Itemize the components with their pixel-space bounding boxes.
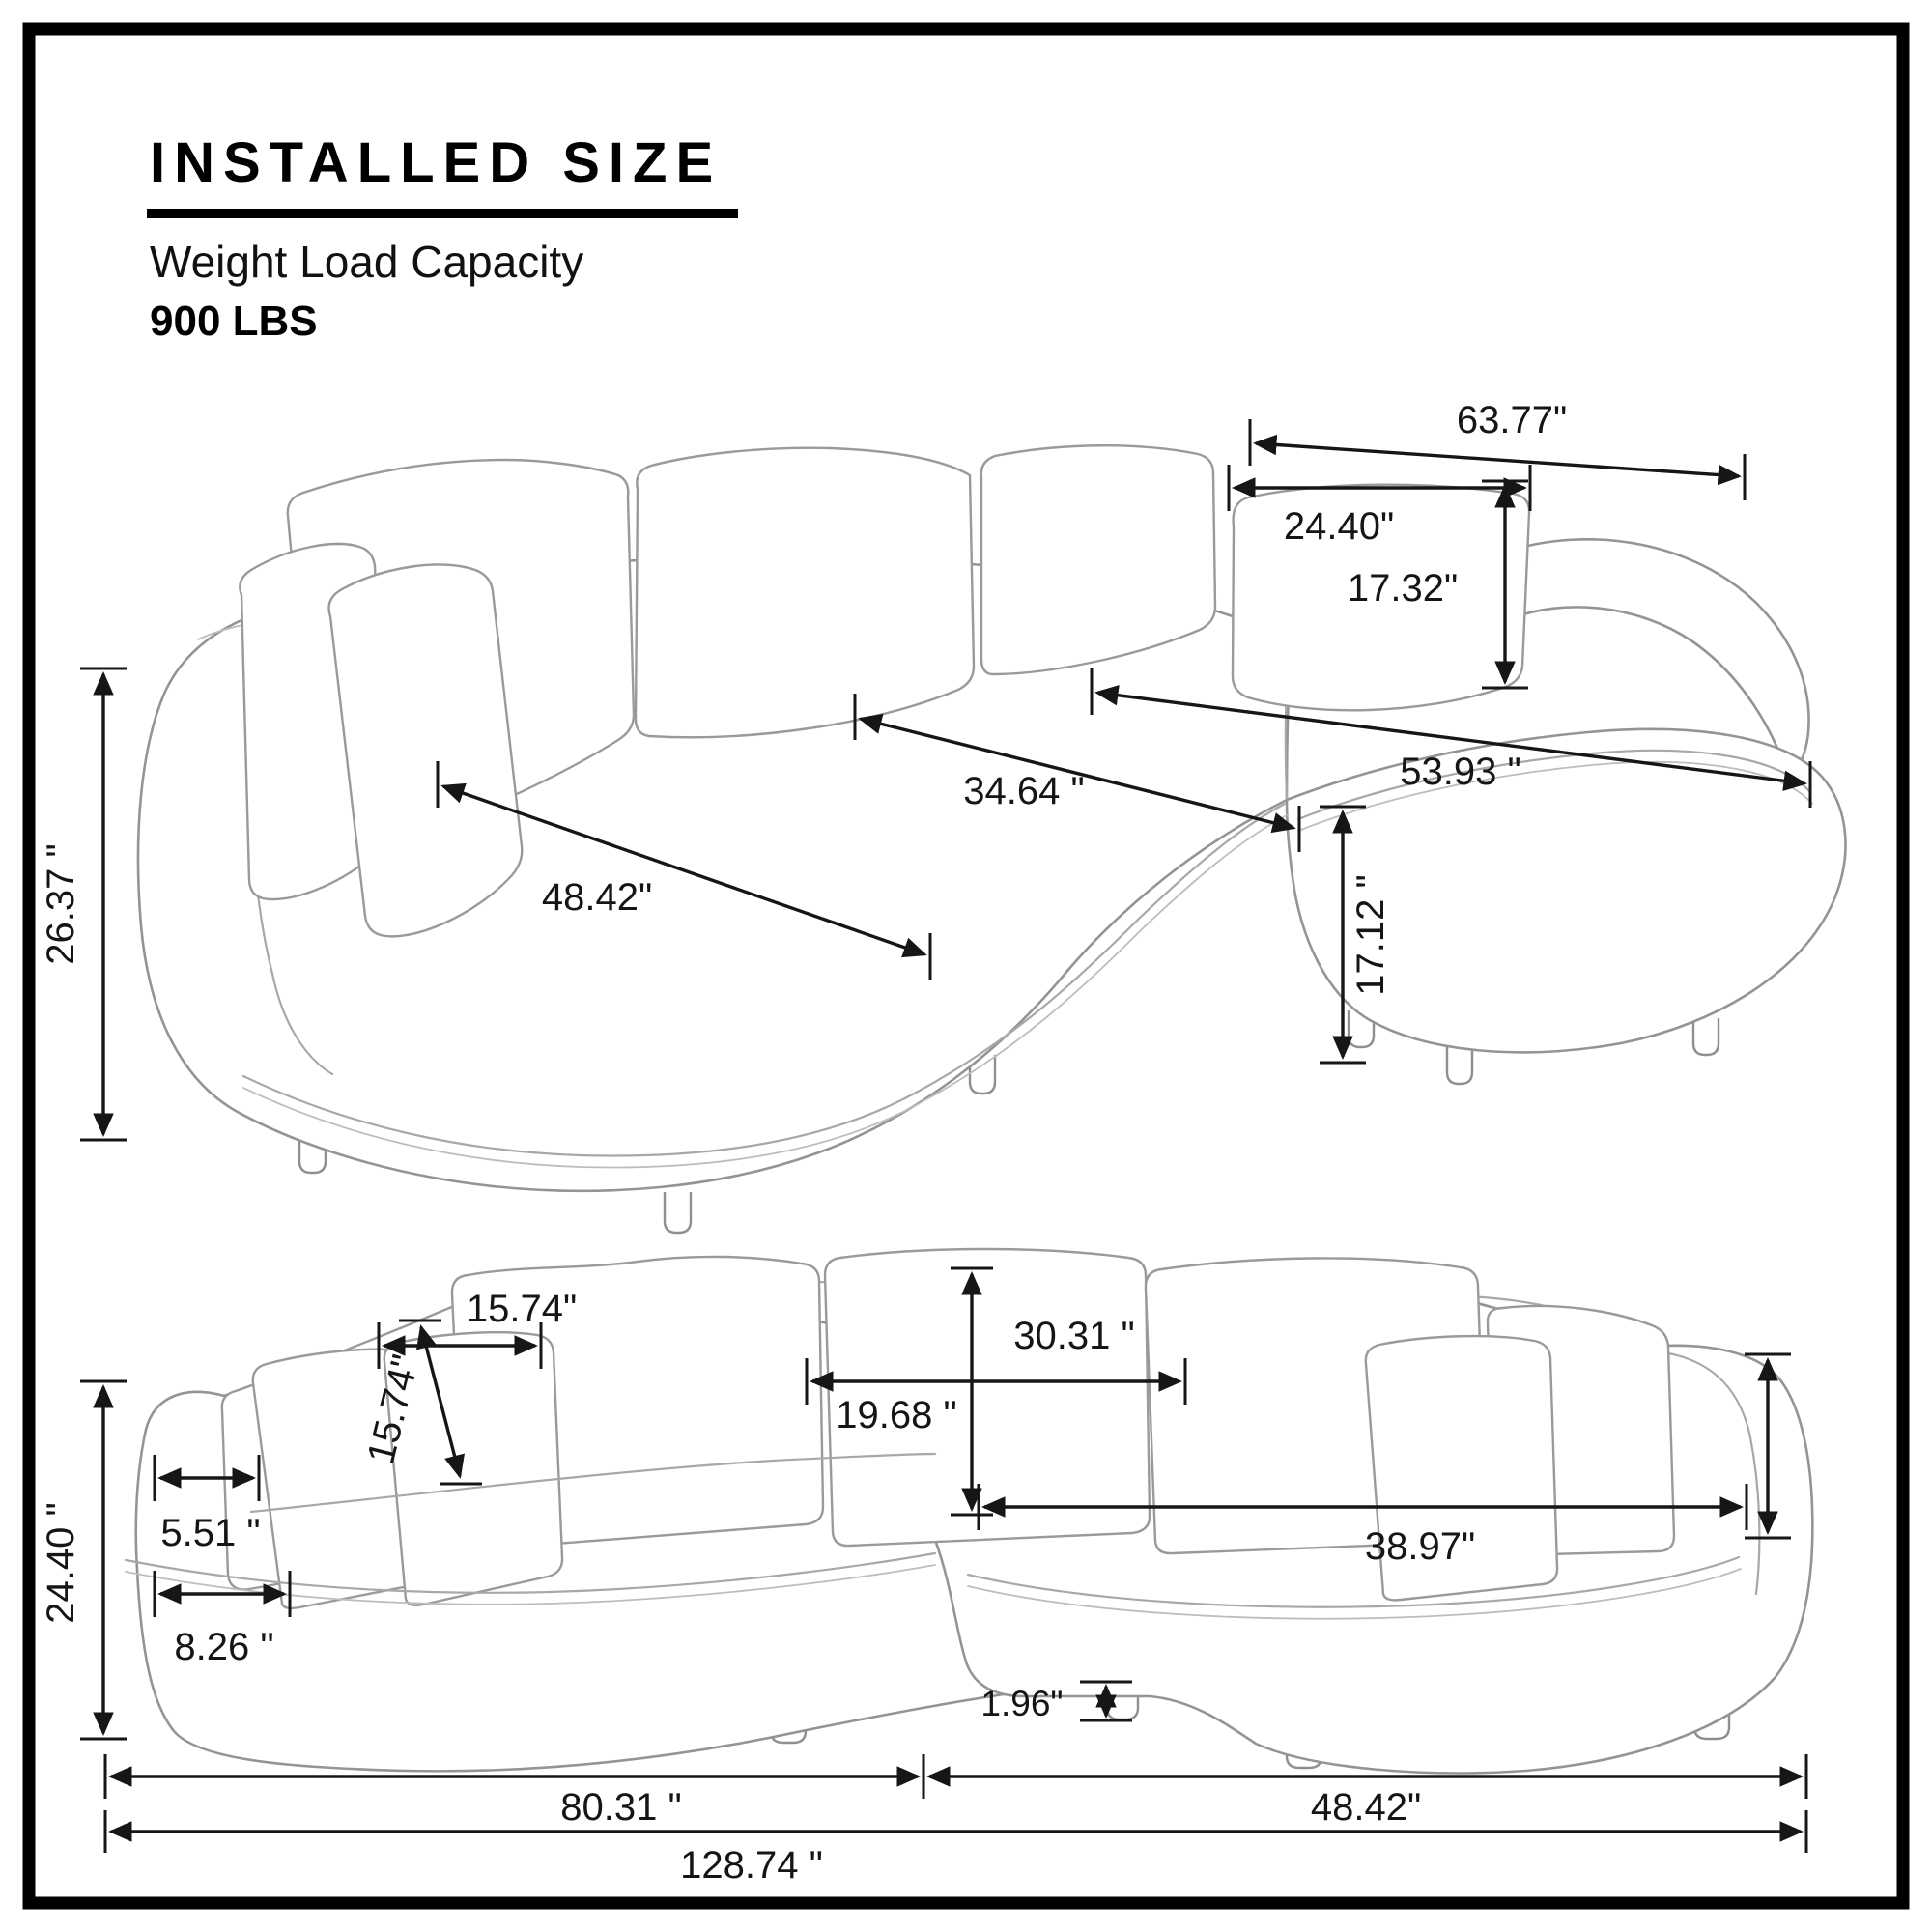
title-underline [147,209,738,218]
dim-label-back-cushion-height: 17.32" [1348,567,1458,610]
dim-label-back-width: 63.77" [1457,399,1567,441]
dim-label-chaise-length: 53.93 " [1400,751,1520,793]
dim-label-arm-top-depth: 5.51 " [160,1512,260,1554]
header: INSTALLED SIZE Weight Load Capacity 900 … [147,131,738,345]
dim-back-width: 63.77" [1250,399,1745,500]
dim-label-right-section-width: 48.42" [1311,1786,1421,1829]
dim-label-left-section-width: 80.31 " [560,1786,681,1829]
dimension-diagram-page: INSTALLED SIZE Weight Load Capacity 900 … [0,0,1932,1932]
back-cushion-2-top-view [636,448,974,738]
page-title: INSTALLED SIZE [150,131,722,194]
dim-label-overall-height-top: 26.37 " [40,843,82,964]
capacity-value: 900 LBS [150,298,318,345]
dim-label-toss-pillow-width: 15.74" [467,1288,577,1330]
dim-label-overall-height-front: 24.40 " [40,1502,82,1623]
top-view-sketch: 63.77" 24.40" 17.32" 34.64 " 53.93 " [40,399,1846,1233]
dim-label-arm-base-depth: 8.26 " [174,1626,273,1668]
dim-label-seat-depth: 34.64 " [963,770,1084,812]
subtitle-weight-load-capacity: Weight Load Capacity [150,237,583,287]
dim-label-chaise-seat-width: 38.97" [1365,1525,1475,1568]
dim-overall-height-front: 24.40 " [40,1381,127,1739]
dim-label-overall-width: 128.74 " [680,1844,823,1887]
dim-label-back-cushion-width-front: 30.31 " [1013,1315,1134,1357]
dim-label-back-cushion-height-front: 19.68 " [836,1394,956,1436]
dim-overall-height-top: 26.37 " [40,668,127,1140]
dim-label-seat-width: 48.42" [542,876,652,919]
dim-label-back-cushion-width: 24.40" [1284,505,1394,548]
dim-overall-width: 128.74 " [105,1810,1806,1887]
dim-label-seat-height-top: 17.12 " [1350,874,1392,995]
dim-label-leg-height: 1.96" [980,1684,1063,1723]
front-view-sketch: 24.40 " 5.51 " 8.26 " 15.74" 15.74" [40,1249,1812,1887]
